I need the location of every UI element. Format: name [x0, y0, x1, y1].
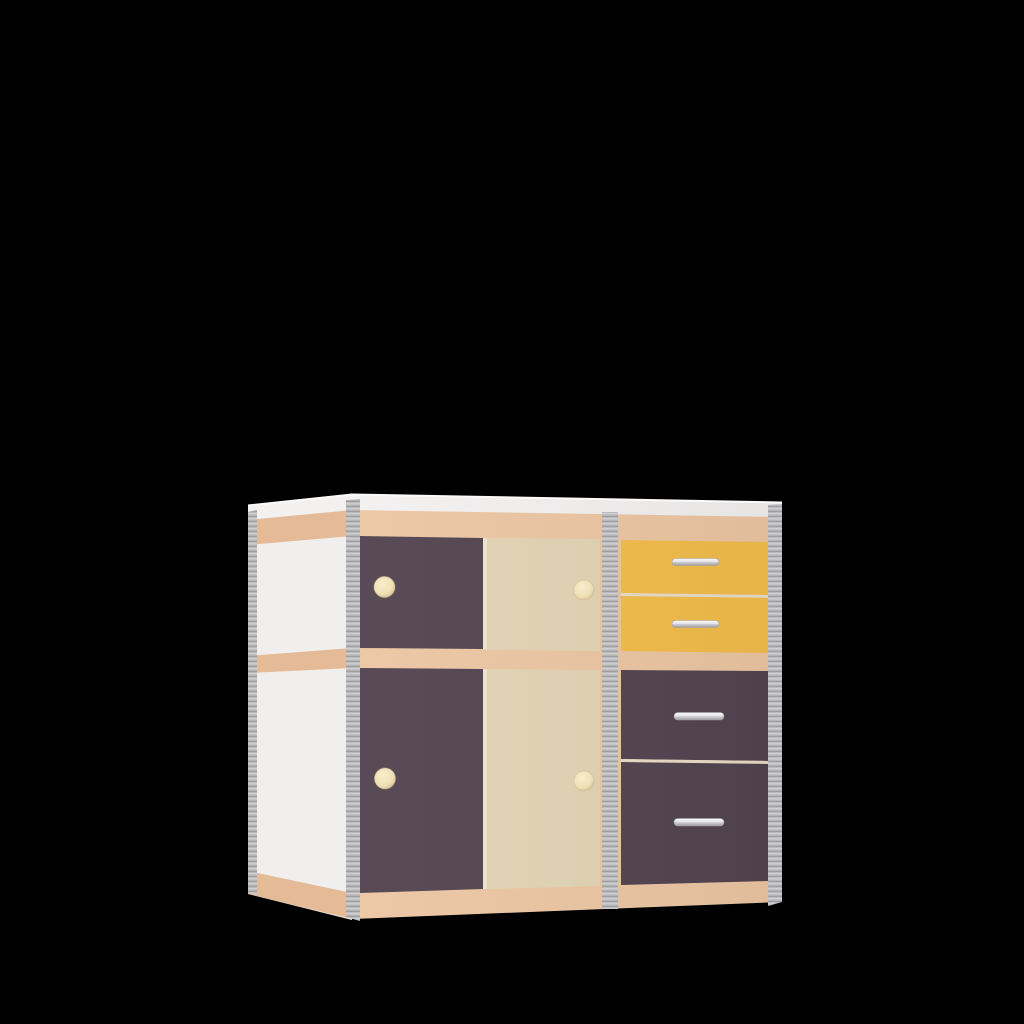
front-face-group	[346, 495, 782, 921]
knob-lower-right-door	[574, 771, 594, 791]
handle-drawer-2	[672, 621, 719, 628]
handle-drawer-3	[674, 713, 724, 721]
knob-upper-right-door	[574, 580, 594, 600]
handle-drawer-4	[674, 819, 724, 827]
side-left-edge-banding	[248, 510, 257, 895]
render-stage	[0, 0, 1024, 1024]
corner-edge-banding	[346, 499, 360, 921]
right-edge-banding	[768, 504, 782, 906]
side-panel	[248, 495, 352, 920]
handle-drawer-1	[672, 559, 719, 566]
side-panel-group	[248, 495, 352, 920]
knob-upper-left-door	[374, 577, 395, 598]
middle-edge-banding	[602, 512, 618, 909]
knob-lower-left-door	[375, 768, 396, 789]
cabinet-render	[0, 0, 1024, 1024]
